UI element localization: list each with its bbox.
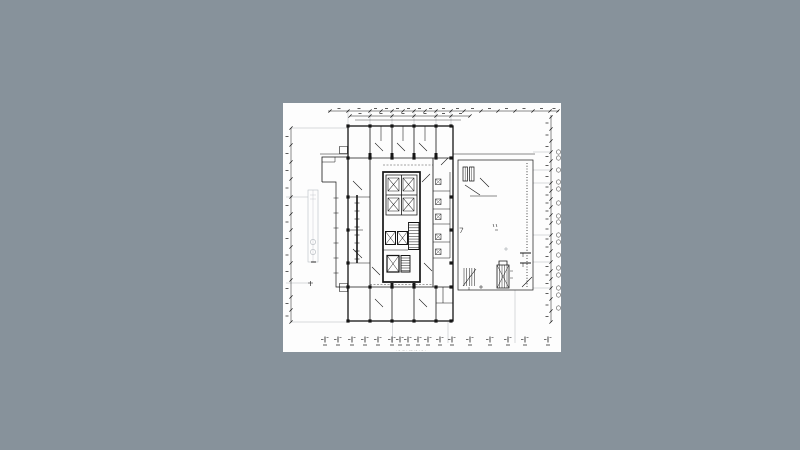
desktop-background: { "scene": { "bg_color": "#87929b", "can… [0,0,800,450]
dimension-string-top [328,108,560,112]
machine-cells-cross [386,232,408,245]
elevator-cars [388,178,414,211]
service-duct [308,190,318,286]
annex-faint-cross [504,247,508,251]
shaft-cell-cross [387,256,399,273]
annex-tee-marks [520,253,531,263]
duct-centerline [310,190,316,262]
drawing-canvas: · – ·– · –– ·– · – · [283,103,561,352]
floor-plan-svg: · – ·– · –– ·– · – · [283,103,561,352]
toilet-fixture-cells [436,179,442,255]
dimension-string-right [546,115,553,324]
drawing-caption: · – ·– · –– ·– · – · [396,348,426,352]
door-jambs [369,153,438,287]
machine-cells [386,232,408,245]
partition-walls [348,126,453,303]
annex [453,154,535,290]
annex-small-symbols [460,224,499,290]
left-survey-cross [308,281,313,286]
dimension-string-top-inner [348,113,471,120]
dimension-string-bottom [321,337,552,346]
extension-lines [286,110,551,343]
dimension-string-left [286,126,293,323]
canopy-inner [322,157,335,162]
annex-stair-rects [463,167,474,181]
facade-ledges [340,147,348,292]
annex-break-marks [463,269,532,287]
annex-equipment-hatch [497,265,513,288]
caption: · – ·– · –– ·– · – · [396,348,426,352]
annex-stair-centerlines [465,167,472,181]
left-canopy [320,154,348,287]
core-elevators [357,172,420,282]
grid-axis-bubbles [556,150,560,310]
